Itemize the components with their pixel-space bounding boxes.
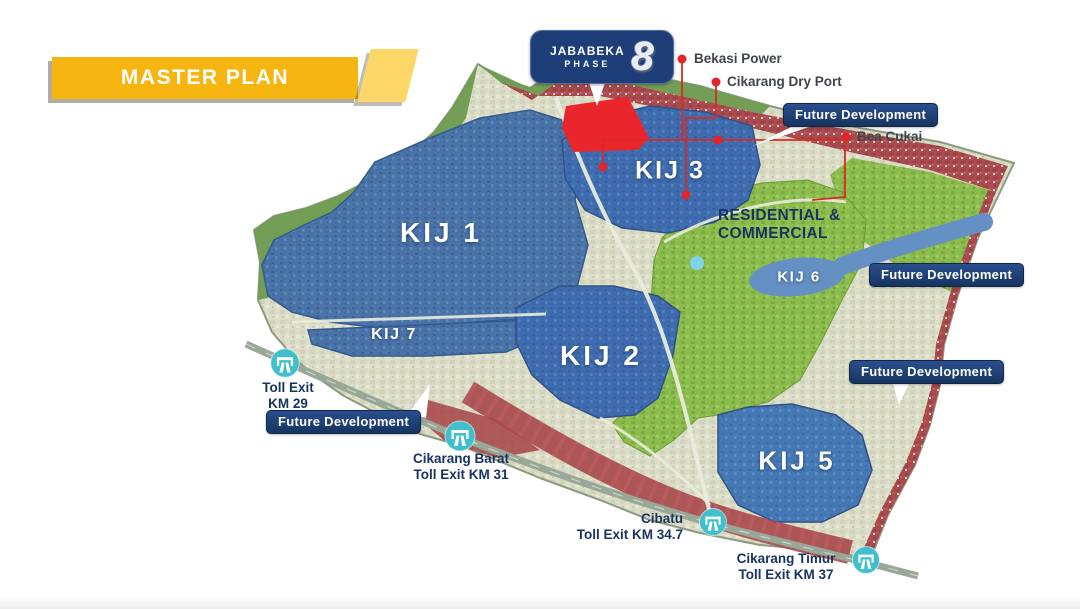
future-development-badge-1: Future Development	[783, 103, 938, 127]
zone-label-kij5: KIJ 5	[758, 446, 835, 477]
page-title: MASTER PLAN	[121, 66, 289, 90]
zone-label-residential: RESIDENTIAL & COMMERCIAL	[718, 207, 840, 243]
master-plan-slide: MASTER PLAN JABABEKA PHASE 8 Bekasi Powe…	[0, 0, 1080, 609]
bottom-edge-shading	[0, 597, 1080, 609]
residential-line1: RESIDENTIAL &	[718, 207, 840, 225]
toll-km29-line2: KM 29	[262, 396, 314, 412]
toll-km29-line1: Toll Exit	[262, 380, 314, 396]
toll-timur-line2: Toll Exit KM 37	[737, 567, 836, 583]
toll-barat-line2: Toll Exit KM 31	[413, 467, 509, 483]
toll-label-cikarang-barat: Cikarang Barat Toll Exit KM 31	[413, 451, 509, 483]
toll-barat-line1: Cikarang Barat	[413, 451, 509, 467]
logo-brand: JABABEKA	[550, 45, 625, 59]
zone-label-kij7: KIJ 7	[371, 326, 417, 344]
toll-timur-line1: Cikarang Timur	[737, 551, 836, 567]
toll-gate-icon-cikarang-barat	[445, 421, 475, 451]
toll-cibatu-line1: Cibatu	[577, 511, 683, 527]
toll-gate-icon-km29	[271, 349, 300, 378]
logo-text: JABABEKA PHASE	[550, 45, 625, 69]
zone-label-kij3: KIJ 3	[635, 157, 705, 186]
toll-cibatu-line2: Toll Exit KM 34.7	[577, 527, 683, 543]
zone-label-kij6: KIJ 6	[777, 269, 820, 286]
poi-label-cikarang-dry-port: Cikarang Dry Port	[727, 74, 842, 89]
poi-label-bekasi-power: Bekasi Power	[694, 51, 782, 66]
zone-label-kij2: KIJ 2	[560, 340, 642, 372]
jababeka-phase8-logo: JABABEKA PHASE 8	[530, 30, 674, 84]
future-development-badge-3: Future Development	[849, 360, 1004, 384]
slide-title-banner: MASTER PLAN	[52, 57, 358, 99]
phase-number-mark: 8	[632, 37, 654, 77]
residential-line2: COMMERCIAL	[718, 225, 840, 243]
poi-label-bea-cukai: Bea Cukai	[857, 129, 922, 144]
toll-label-cikarang-timur: Cikarang Timur Toll Exit KM 37	[737, 551, 836, 583]
toll-gate-icon-cibatu	[700, 509, 727, 536]
toll-label-cibatu: Cibatu Toll Exit KM 34.7	[577, 511, 683, 543]
lake	[690, 256, 704, 270]
future-development-badge-4: Future Development	[266, 410, 421, 434]
future-development-badge-2: Future Development	[869, 263, 1024, 287]
zone-label-kij1: KIJ 1	[400, 217, 482, 249]
toll-gate-icon-cikarang-timur	[853, 547, 880, 574]
logo-phase-word: PHASE	[550, 59, 625, 69]
toll-label-km29: Toll Exit KM 29	[262, 380, 314, 412]
